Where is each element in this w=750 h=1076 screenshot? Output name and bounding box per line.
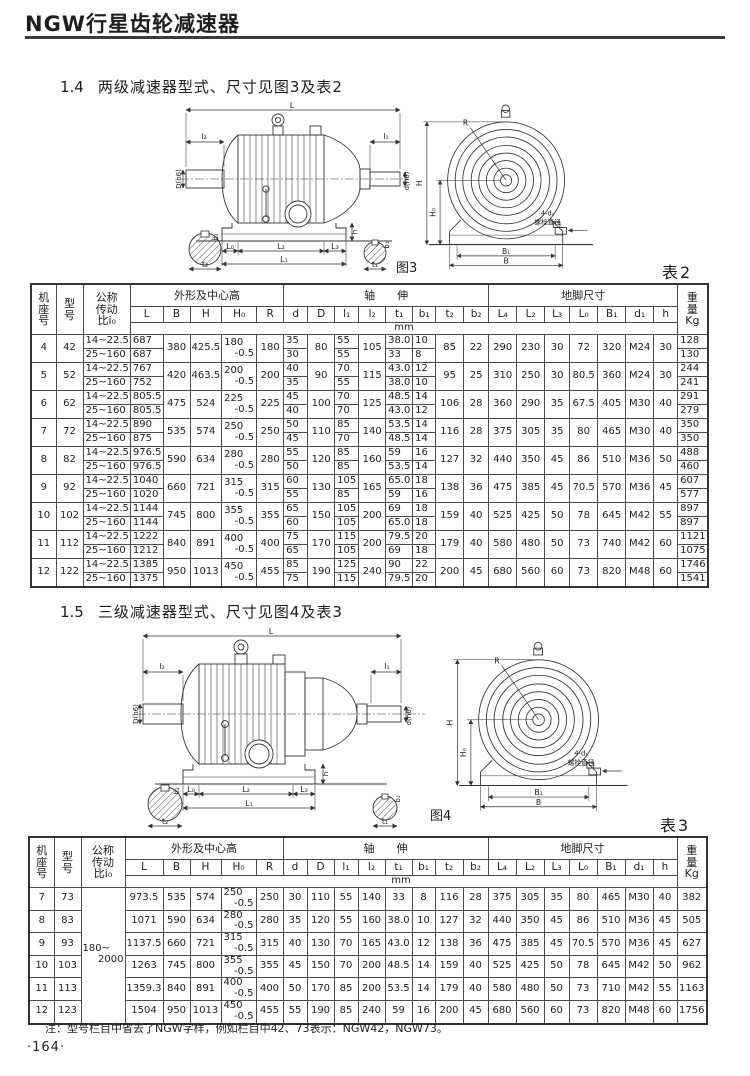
col-H: H bbox=[190, 307, 222, 323]
col-nominal-ratio: 公称 传动 比i₀ bbox=[83, 284, 130, 335]
col-l2: l₂ bbox=[358, 860, 385, 876]
table-cell: 45 bbox=[545, 447, 570, 475]
fig4-housing-outline bbox=[137, 640, 425, 784]
table-cell: 425.5 bbox=[190, 335, 222, 363]
table-cell: 28 bbox=[464, 419, 489, 447]
table-cell: 627 bbox=[677, 933, 707, 956]
table-cell: 805.5 bbox=[130, 405, 163, 419]
table-cell: 40 bbox=[464, 503, 489, 531]
table-cell: 70.5 bbox=[570, 475, 598, 503]
table-cell: 290 bbox=[517, 391, 545, 419]
table-cell: 25~160 bbox=[83, 405, 130, 419]
table-cell: 55 bbox=[284, 447, 308, 461]
table-cell: 55 bbox=[654, 503, 678, 531]
col-B1: B₁ bbox=[597, 860, 625, 876]
table-cell: 25~160 bbox=[83, 433, 130, 447]
table-cell: 5 bbox=[31, 363, 56, 391]
col-H0: H₀ bbox=[222, 307, 257, 323]
col-frame-no: 机 座 号 bbox=[31, 284, 56, 335]
table-cell: 73 bbox=[569, 978, 597, 1001]
table-cell: 40 bbox=[463, 978, 488, 1001]
table-cell: 69 bbox=[386, 545, 413, 559]
table-cell: 1375 bbox=[130, 573, 163, 588]
table-cell: 10 bbox=[29, 955, 54, 978]
table-cell: 73 bbox=[570, 531, 598, 559]
table-cell: 45 bbox=[654, 475, 678, 503]
table-cell: 475 bbox=[488, 933, 516, 956]
table-cell: 250 bbox=[256, 888, 283, 911]
table-cell: 103 bbox=[54, 955, 81, 978]
dim-label-B: B bbox=[504, 256, 509, 265]
group-shaft-extension: 轴 伸 bbox=[283, 837, 488, 860]
table-cell: 82 bbox=[56, 447, 83, 475]
table-cell: 382 bbox=[677, 888, 707, 911]
table-cell: 127 bbox=[435, 910, 463, 933]
figure4-caption: 图4 bbox=[430, 805, 451, 824]
table-cell: 570 bbox=[598, 475, 626, 503]
table-row: 111131359.3840891400-0.5400501708520053.… bbox=[29, 978, 707, 1001]
table-cell: 45 bbox=[283, 955, 307, 978]
figure3-caption: 图3 bbox=[396, 257, 417, 276]
dim-label-L0: L₀ bbox=[226, 242, 234, 251]
col-B: B bbox=[163, 860, 190, 876]
col-model: 型 号 bbox=[54, 837, 81, 888]
table-cell: 524 bbox=[190, 391, 222, 419]
table-cell: 45 bbox=[544, 910, 569, 933]
table-cell: 8 bbox=[412, 888, 435, 911]
table-cell: 800 bbox=[190, 955, 221, 978]
fig4-reducer-front-view: R H H₀ B₁ B 4-d₁ 螺栓直径 bbox=[438, 638, 643, 815]
col-L2: L₂ bbox=[517, 307, 545, 323]
mounting-base bbox=[222, 223, 346, 241]
table-cell: 280-0.5 bbox=[221, 910, 256, 933]
dim-label-t1: t₁ bbox=[372, 260, 378, 269]
table-cell: 120 bbox=[308, 447, 335, 475]
table-cell: 79.5 bbox=[386, 573, 413, 588]
table-cell: 12 bbox=[412, 933, 435, 956]
table-cell: 140 bbox=[359, 419, 386, 447]
table-cell: 52 bbox=[56, 363, 83, 391]
table-cell: 767 bbox=[130, 363, 163, 377]
table-cell: 244 bbox=[678, 363, 708, 377]
table-cell: 36 bbox=[464, 475, 489, 503]
table-header-row: L B H H₀ R d D l₁ l₂ t₁ b₁ t₂ b₂ L₄ L₂ L… bbox=[29, 860, 707, 876]
table-cell: 385 bbox=[517, 475, 545, 503]
table-cell: 150 bbox=[308, 503, 335, 531]
dim-label-L3: L₃ bbox=[331, 242, 339, 251]
table-cell: 14 bbox=[413, 419, 436, 433]
table3-caption: 表3 bbox=[660, 812, 690, 836]
table-cell: 14~22.5 bbox=[83, 503, 130, 517]
table-cell: 574 bbox=[190, 888, 221, 911]
table-cell: 950 bbox=[163, 559, 190, 588]
table-cell: 1263 bbox=[125, 955, 163, 978]
table-cell: 128 bbox=[678, 335, 708, 349]
table-cell: 14~22.5 bbox=[83, 447, 130, 461]
table-cell: 1144 bbox=[130, 517, 163, 531]
table-cell: 279 bbox=[678, 405, 708, 419]
col-L2: L₂ bbox=[516, 860, 544, 876]
table-cell: 32 bbox=[463, 910, 488, 933]
table-cell: 55 bbox=[653, 978, 677, 1001]
table-cell: 35 bbox=[544, 888, 569, 911]
table-cell: 721 bbox=[190, 933, 221, 956]
table-cell: 560 bbox=[517, 559, 545, 588]
table2-body: 44214~22.5687380425.5180-0.5180358055105… bbox=[31, 335, 708, 588]
table-cell: 10 bbox=[413, 335, 436, 349]
table-cell: 45 bbox=[545, 475, 570, 503]
table-cell: 480 bbox=[517, 531, 545, 559]
table-cell: 180~2000 bbox=[81, 888, 125, 1024]
table-cell: 305 bbox=[516, 888, 544, 911]
fig3-housing-outline bbox=[180, 114, 408, 241]
table-cell: 875 bbox=[130, 433, 163, 447]
table-cell: 560 bbox=[516, 1000, 544, 1023]
dim-label-H0: H₀ bbox=[459, 748, 468, 757]
title-underline bbox=[25, 36, 725, 39]
table-cell: 14~22.5 bbox=[83, 531, 130, 545]
table-cell: 740 bbox=[598, 531, 626, 559]
col-frame-no: 机 座 号 bbox=[29, 837, 54, 888]
table-cell: 350 bbox=[678, 433, 708, 447]
table-cell: 16 bbox=[413, 489, 436, 503]
table-cell: 86 bbox=[569, 910, 597, 933]
table-cell: 4 bbox=[31, 335, 56, 363]
table-cell: 14 bbox=[412, 978, 435, 1001]
table-cell: 16 bbox=[413, 447, 436, 461]
table-cell: 60 bbox=[654, 531, 678, 559]
table-cell: 30 bbox=[545, 335, 570, 363]
table-cell: 200-0.5 bbox=[222, 363, 257, 391]
table-cell: 180-0.5 bbox=[222, 335, 257, 363]
table-cell: M36 bbox=[626, 447, 654, 475]
table-unit-row: mm bbox=[31, 323, 708, 335]
table-cell: 25~160 bbox=[83, 573, 130, 588]
dim-label-L: L bbox=[269, 627, 274, 636]
table-cell: 230 bbox=[517, 335, 545, 363]
table-cell: 897 bbox=[678, 503, 708, 517]
table-cell: 159 bbox=[436, 503, 464, 531]
table-cell: 1212 bbox=[130, 545, 163, 559]
table-cell: 165 bbox=[359, 475, 386, 503]
section-number: 1.5 bbox=[60, 603, 84, 621]
table-cell: 480 bbox=[516, 978, 544, 1001]
table-cell: 291 bbox=[678, 391, 708, 405]
table-cell: 160 bbox=[358, 910, 385, 933]
table-cell: 200 bbox=[436, 559, 464, 588]
table-cell: 190 bbox=[308, 559, 335, 588]
table-cell: 320 bbox=[598, 335, 626, 363]
col-weight: 重 量 Kg bbox=[678, 284, 708, 335]
table-cell: 115 bbox=[359, 363, 386, 391]
table-cell: M30 bbox=[625, 888, 653, 911]
unit-mm: mm bbox=[130, 323, 677, 335]
dim-label-b1: b₁ bbox=[383, 241, 391, 248]
table-cell: 55 bbox=[335, 377, 359, 391]
footnote: 注：型号栏目中省去了NGW字样，例如栏目中42、73表示：NGW42，NGW73… bbox=[45, 1020, 448, 1036]
dim-label-h: h bbox=[322, 772, 330, 776]
col-L4: L₄ bbox=[489, 307, 517, 323]
table-cell: 897 bbox=[678, 517, 708, 531]
table-cell: 225 bbox=[257, 391, 284, 419]
table-cell: 30 bbox=[545, 363, 570, 391]
table-cell: 10 bbox=[412, 910, 435, 933]
dim-label-L2: L₂ bbox=[277, 242, 285, 251]
table-cell: 440 bbox=[488, 910, 516, 933]
table-cell: 62 bbox=[56, 391, 83, 419]
table-cell: 165 bbox=[358, 933, 385, 956]
table-cell: 315 bbox=[257, 475, 284, 503]
table-cell: 72 bbox=[570, 335, 598, 363]
table-cell: 8 bbox=[31, 447, 56, 475]
table-cell: 18 bbox=[413, 545, 436, 559]
table-row: 55214~22.5767420463.5200-0.5200409070115… bbox=[31, 363, 708, 377]
table-cell: 1756 bbox=[677, 1000, 707, 1023]
table-cell: 607 bbox=[678, 475, 708, 489]
table-cell: 1163 bbox=[677, 978, 707, 1001]
col-L: L bbox=[125, 860, 163, 876]
table-cell: 35 bbox=[284, 335, 308, 349]
col-t2: t₂ bbox=[436, 307, 464, 323]
table-row: 1212214~22.513859501013450-0.54558519012… bbox=[31, 559, 708, 573]
col-d1: d₁ bbox=[626, 307, 654, 323]
table-cell: 43.0 bbox=[386, 363, 413, 377]
table-cell: 250 bbox=[517, 363, 545, 391]
table-cell: 50 bbox=[284, 419, 308, 433]
table-cell: 48.5 bbox=[386, 391, 413, 405]
table-cell: 85 bbox=[335, 419, 359, 433]
table-cell: 505 bbox=[677, 910, 707, 933]
table-row: 9931137.5660721315-0.5315401307016543.01… bbox=[29, 933, 707, 956]
table-cell: 93 bbox=[54, 933, 81, 956]
dim-label-L1: L₁ bbox=[280, 255, 288, 264]
table-cell: 50 bbox=[545, 503, 570, 531]
table-cell: 45 bbox=[284, 433, 308, 447]
table-cell: 375 bbox=[489, 419, 517, 447]
table-cell: 73 bbox=[54, 888, 81, 911]
table-cell: 574 bbox=[190, 419, 222, 447]
table-cell: M36 bbox=[626, 475, 654, 503]
fig4-dimensions: L l₂ l₁ D(h6) d(h6) h L₀ L₂ L₃ L₁ bbox=[132, 627, 413, 811]
dim-label-b2: b₂ bbox=[173, 787, 181, 794]
table-cell: 53.5 bbox=[385, 978, 412, 1001]
table-cell: 510 bbox=[598, 447, 626, 475]
table-row: 101031263745800355-0.5355451507020048.51… bbox=[29, 955, 707, 978]
col-b2: b₂ bbox=[464, 307, 489, 323]
table-cell: 634 bbox=[190, 447, 222, 475]
table-cell: 112 bbox=[56, 531, 83, 559]
table-cell: 475 bbox=[489, 475, 517, 503]
section-1-4-heading: 1.4两级减速器型式、尺寸见图3及表2 bbox=[60, 76, 343, 97]
table-cell: 60 bbox=[545, 559, 570, 588]
table-cell: 53.5 bbox=[386, 461, 413, 475]
fig4-front-dimensions: R H H₀ B₁ B 4-d₁ 螺栓直径 bbox=[446, 657, 622, 811]
lifting-eye bbox=[234, 640, 248, 654]
table-cell: 38.0 bbox=[386, 335, 413, 349]
table-cell: 315 bbox=[256, 933, 283, 956]
dim-label-B1: B₁ bbox=[502, 247, 510, 256]
table-cell: 28 bbox=[464, 391, 489, 419]
table-cell: 310 bbox=[489, 363, 517, 391]
table-cell: 475 bbox=[163, 391, 190, 419]
table-cell: 70 bbox=[335, 391, 359, 405]
table-cell: 125 bbox=[359, 391, 386, 419]
table-cell: M24 bbox=[626, 363, 654, 391]
table-cell: 80 bbox=[570, 419, 598, 447]
table-cell: 80 bbox=[569, 888, 597, 911]
table-cell: 55 bbox=[284, 489, 308, 503]
table-cell: 43.0 bbox=[386, 405, 413, 419]
page-title: NGW行星齿轮减速器 bbox=[25, 8, 240, 38]
table3-body: 773180~2000973.5535574250-0.525030110551… bbox=[29, 888, 707, 1024]
table-cell: 67.5 bbox=[570, 391, 598, 419]
col-l2: l₂ bbox=[359, 307, 386, 323]
table-cell: 350 bbox=[678, 419, 708, 433]
col-L: L bbox=[130, 307, 163, 323]
section-title: 三级减速器型式、尺寸见图4及表3 bbox=[98, 603, 343, 621]
dim-label-t1: t₁ bbox=[382, 817, 388, 826]
table-cell: 105 bbox=[335, 503, 359, 517]
dim-label-b1: b₁ bbox=[394, 795, 402, 802]
dim-label-b2: b₂ bbox=[212, 233, 220, 240]
table-cell: 12 bbox=[413, 405, 436, 419]
table-cell: 8 bbox=[29, 910, 54, 933]
table-cell: 50 bbox=[544, 955, 569, 978]
table-cell: M24 bbox=[626, 335, 654, 363]
col-B: B bbox=[163, 307, 190, 323]
table-cell: 65 bbox=[284, 503, 308, 517]
col-d: d bbox=[284, 307, 308, 323]
unit-mm: mm bbox=[125, 876, 677, 888]
table-cell: 85 bbox=[436, 335, 464, 363]
table-header-row: 机 座 号 型 号 公称 传动 比i₀ 外形及中心高 轴 伸 地脚尺寸 重 量 … bbox=[31, 284, 708, 307]
table-cell: 535 bbox=[163, 888, 190, 911]
col-R: R bbox=[256, 860, 283, 876]
dim-label-R: R bbox=[494, 657, 500, 666]
table-cell: 840 bbox=[163, 531, 190, 559]
table-cell: 7 bbox=[29, 888, 54, 911]
table-cell: 60 bbox=[284, 475, 308, 489]
table-row: 773180~2000973.5535574250-0.525030110551… bbox=[29, 888, 707, 911]
table-cell: 280-0.5 bbox=[222, 447, 257, 475]
lifting-eye bbox=[272, 114, 284, 126]
table-cell: 10 bbox=[31, 503, 56, 531]
table-cell: 90 bbox=[308, 363, 335, 391]
table-cell: 60 bbox=[284, 517, 308, 531]
table-cell: 14 bbox=[412, 955, 435, 978]
table-header-row: L B H H₀ R d D l₁ l₂ t₁ b₁ t₂ b₂ L₄ L₂ L… bbox=[31, 307, 708, 323]
table-cell: 1137.5 bbox=[125, 933, 163, 956]
table-cell: 85 bbox=[335, 489, 359, 503]
table-cell: 315-0.5 bbox=[222, 475, 257, 503]
table-cell: 14~22.5 bbox=[83, 335, 130, 349]
table-cell: 40 bbox=[464, 531, 489, 559]
table-cell: 33 bbox=[386, 349, 413, 363]
dim-label-L3: L₃ bbox=[300, 785, 308, 794]
table-cell: 820 bbox=[597, 1000, 625, 1023]
table-cell: 680 bbox=[488, 1000, 516, 1023]
table-cell: 660 bbox=[163, 475, 190, 503]
table-cell: 25~160 bbox=[83, 545, 130, 559]
table-cell: 85 bbox=[335, 447, 359, 461]
table-cell: 95 bbox=[436, 363, 464, 391]
table-cell: 30 bbox=[654, 363, 678, 391]
col-t1: t₁ bbox=[386, 307, 413, 323]
table-cell: 1385 bbox=[130, 559, 163, 573]
table-cell: 130 bbox=[308, 475, 335, 503]
table-cell: 50 bbox=[653, 955, 677, 978]
table-cell: 535 bbox=[163, 419, 190, 447]
table-cell: 25~160 bbox=[83, 377, 130, 391]
table-cell: 72 bbox=[56, 419, 83, 447]
table-cell: 1075 bbox=[678, 545, 708, 559]
dim-label-B: B bbox=[536, 798, 541, 807]
table-cell: 570 bbox=[597, 933, 625, 956]
table-cell: 710 bbox=[597, 978, 625, 1001]
bolt-diameter-label: 螺栓直径 bbox=[534, 218, 561, 227]
table-cell: 110 bbox=[307, 888, 334, 911]
table-cell: 90 bbox=[386, 559, 413, 573]
table-cell: 14~22.5 bbox=[83, 391, 130, 405]
col-t1: t₁ bbox=[385, 860, 412, 876]
dim-label-t2: t₂ bbox=[162, 817, 168, 826]
group-shape-centerheight: 外形及中心高 bbox=[130, 284, 283, 307]
table-cell: 116 bbox=[436, 419, 464, 447]
table-cell: 25~160 bbox=[83, 517, 130, 531]
table-cell: 400 bbox=[257, 531, 284, 559]
group-shape-centerheight: 外形及中心高 bbox=[125, 837, 283, 860]
dim-label-l2: l₂ bbox=[159, 662, 164, 671]
fig3-reducer-side-view: L l₂ l₁ D(h6) d(h6) h L₀ L₂ L₃ L₁ bbox=[178, 101, 410, 273]
table-row: 8831071590634280-0.5280351205516038.0101… bbox=[29, 910, 707, 933]
dim-label-R: R bbox=[463, 119, 469, 128]
table-cell: 660 bbox=[163, 933, 190, 956]
table-cell: 375 bbox=[488, 888, 516, 911]
table-cell: 130 bbox=[678, 349, 708, 363]
table-cell: 1040 bbox=[130, 475, 163, 489]
col-d1: d₁ bbox=[625, 860, 653, 876]
table-cell: 45 bbox=[653, 910, 677, 933]
table-cell: 70.5 bbox=[569, 933, 597, 956]
table-cell: 250 bbox=[257, 419, 284, 447]
table-cell: 53.5 bbox=[386, 419, 413, 433]
table-cell: 400-0.5 bbox=[222, 531, 257, 559]
table-cell: 35 bbox=[545, 419, 570, 447]
col-R: R bbox=[257, 307, 284, 323]
table-cell: 79.5 bbox=[386, 531, 413, 545]
table-cell: 86 bbox=[570, 447, 598, 475]
table-cell: 70 bbox=[335, 363, 359, 377]
table-cell: 73 bbox=[569, 1000, 597, 1023]
table-cell: 80.5 bbox=[570, 363, 598, 391]
col-model: 型 号 bbox=[56, 284, 83, 335]
table-cell: 1541 bbox=[678, 573, 708, 588]
table-cell: 43.0 bbox=[385, 933, 412, 956]
table-cell: 9 bbox=[29, 933, 54, 956]
col-L3: L₃ bbox=[544, 860, 569, 876]
table-cell: 1020 bbox=[130, 489, 163, 503]
table-cell: 425 bbox=[517, 503, 545, 531]
col-L0: L₀ bbox=[570, 307, 598, 323]
col-D: D bbox=[307, 860, 334, 876]
table-cell: M42 bbox=[625, 978, 653, 1001]
dim-label-H: H bbox=[415, 180, 424, 186]
table-cell: 14 bbox=[413, 433, 436, 447]
fig3-reducer-front-view: R H H₀ B₁ B 4-d₁ 螺栓直径 bbox=[408, 101, 608, 273]
dim-label-L0: L₀ bbox=[187, 785, 195, 794]
table-cell: 12 bbox=[31, 559, 56, 588]
table-cell: 113 bbox=[54, 978, 81, 1001]
